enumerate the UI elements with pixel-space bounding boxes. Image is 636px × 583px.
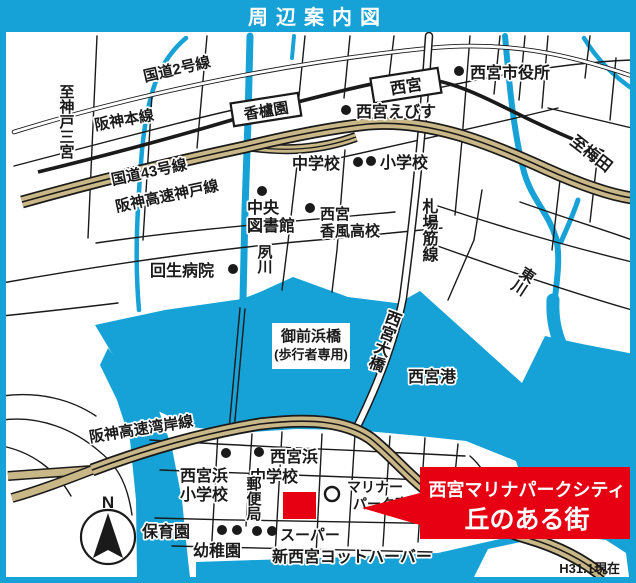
label-es-top: 小学校 (380, 153, 429, 172)
dot-facility (232, 525, 242, 535)
dot-hama-es (221, 448, 231, 458)
frame-right (630, 32, 636, 583)
dot-kaisei-hospital (228, 264, 238, 274)
label-hama-es-line1: 西宮浜 (180, 466, 228, 485)
label-hama-es-line2: 小学校 (180, 485, 229, 504)
dot-facility (267, 526, 277, 536)
label-shukugawa: 夙川 (256, 244, 274, 274)
map-updated-note: H31.1現在 (559, 561, 620, 576)
banner-title-line1: 西宮マリナパークシティ (429, 479, 626, 500)
map-canvas: 香櫨園 西宮 至神戸三宮 国道2号線 阪神本線 西宮えびす 西宮市役所 至梅田 … (0, 0, 636, 583)
dot-facility (217, 525, 227, 535)
label-nursery: 保育園 (141, 522, 190, 541)
label-library-line1: 中央 (247, 198, 280, 217)
label-yacht-harbor: 新西宮ヨットハーバー (272, 547, 432, 566)
label-city-hall: 西宮市役所 (470, 63, 550, 82)
label-post-office: 郵便局 (245, 475, 263, 522)
label-supermarket: スーパー (280, 527, 340, 544)
label-library-line2: 図書館 (247, 216, 295, 235)
dot-facility (252, 526, 262, 536)
label-port: 西宮港 (408, 367, 457, 386)
label-gozenhama-line1: 御前浜橋 (280, 327, 342, 345)
label-to-kobe-sannomiya: 至神戸三宮 (58, 84, 75, 160)
dot-hama-jhs (254, 447, 264, 457)
label-marina-park-east-line1: マリナー (347, 479, 403, 495)
marina-park-city-marker (283, 492, 316, 519)
label-jhs-top: 中学校 (292, 154, 341, 173)
label-kofu-line2: 香風高校 (320, 222, 381, 240)
label-ebisu: 西宮えびす (356, 102, 436, 121)
river-small-top (292, 36, 294, 58)
label-kaisei-hospital: 回生病院 (150, 261, 214, 280)
dot-city-hall (454, 66, 464, 76)
dot-jhs (353, 157, 363, 167)
dot-library (257, 186, 267, 196)
label-gozenhama-line2: (歩行者専用) (274, 347, 348, 362)
label-hama-jhs-line1: 西宮浜 (270, 447, 318, 466)
dot-ebisu (341, 105, 351, 115)
label-kindergarten: 幼稚園 (193, 541, 241, 560)
dot-kofu-highschool (305, 203, 315, 213)
frame-left (0, 32, 6, 583)
marina-park-east-stop-icon (325, 487, 339, 501)
area-guide-map: 香櫨園 西宮 至神戸三宮 国道2号線 阪神本線 西宮えびす 西宮市役所 至梅田 … (0, 0, 636, 583)
label-kofu-line1: 西宮 (320, 205, 350, 223)
banner-title-line2: 丘のある街 (464, 505, 589, 534)
dot-es (366, 156, 376, 166)
page-title: 周辺案内図 (248, 5, 388, 29)
frame-bottom (0, 577, 636, 583)
